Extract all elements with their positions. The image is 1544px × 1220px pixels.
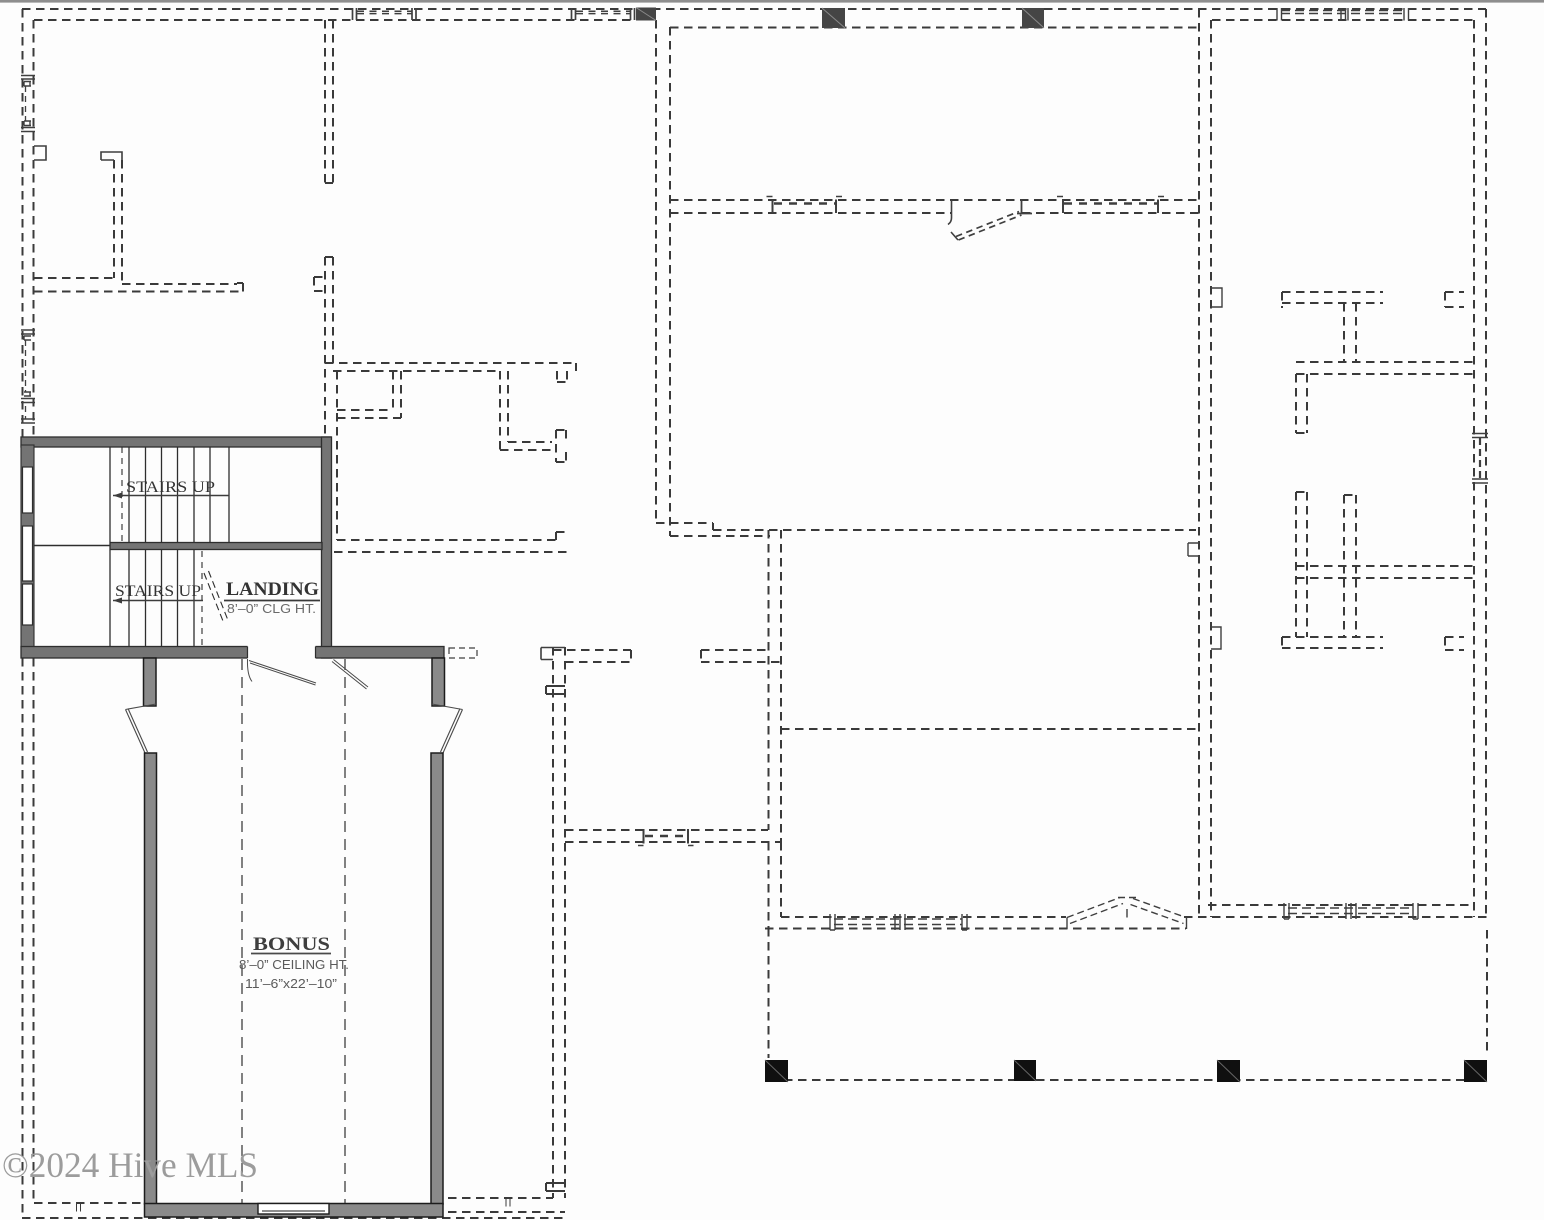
- svg-text:STAIRS UP: STAIRS UP: [115, 583, 201, 600]
- svg-text:8’–0” CEILING HT.: 8’–0” CEILING HT.: [239, 958, 349, 972]
- svg-text:8’–0” CLG HT.: 8’–0” CLG HT.: [227, 602, 316, 616]
- svg-text:STAIRS UP: STAIRS UP: [126, 479, 215, 496]
- svg-text:LANDING: LANDING: [226, 580, 319, 600]
- svg-text:11’–6”x22’–10”: 11’–6”x22’–10”: [245, 977, 337, 991]
- svg-text:BONUS: BONUS: [253, 935, 330, 955]
- svg-text:©2024 Hive MLS: ©2024 Hive MLS: [2, 1145, 258, 1185]
